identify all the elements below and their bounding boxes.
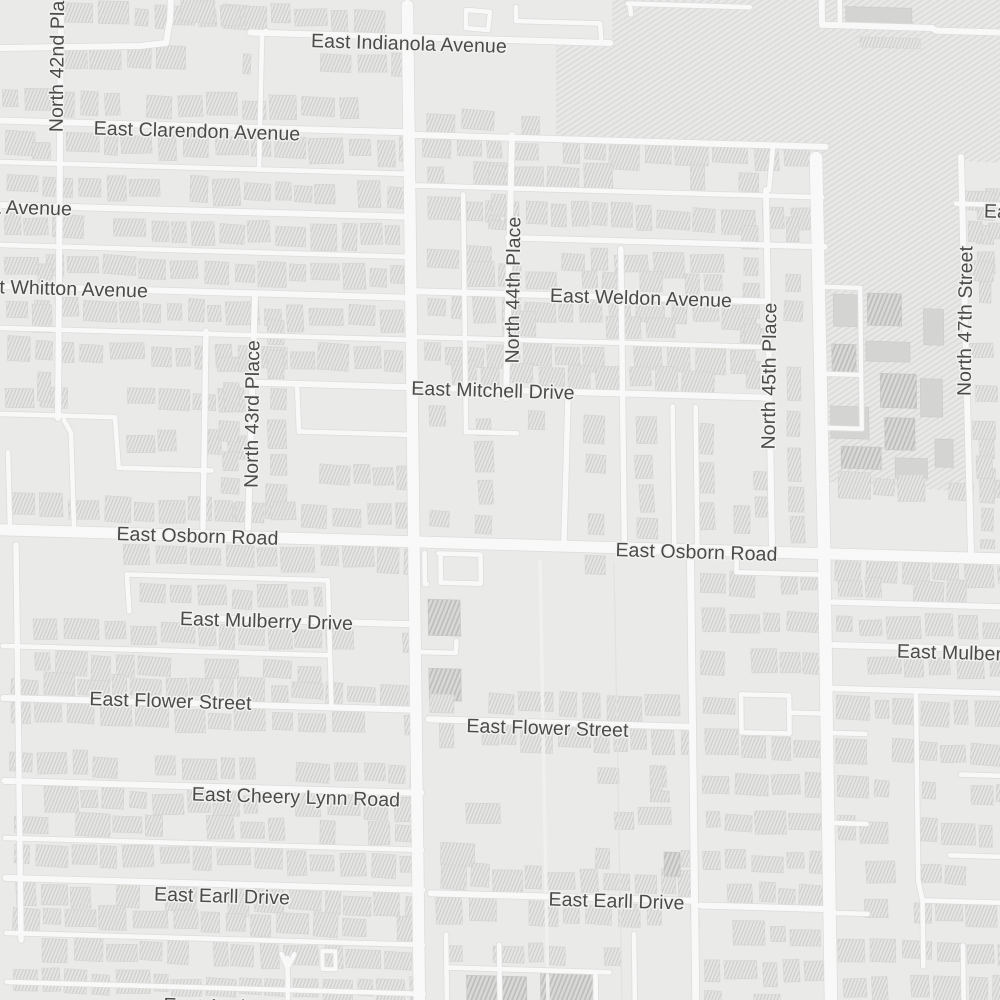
svg-text:East Flower Street: East Flower Street [89,688,252,715]
svg-text:North 44th Place: North 44th Place [502,216,526,363]
svg-text:East Osborn Road: East Osborn Road [615,539,778,566]
svg-text:North 43rd Place: North 43rd Place [241,340,265,488]
svg-text:North 45th Place: North 45th Place [758,302,782,449]
svg-text:East Earll Drive: East Earll Drive [154,884,291,910]
svg-text:East Earll Drive: East Earll Drive [548,889,685,915]
svg-text:East Flower Street: East Flower Street [466,715,629,742]
svg-text:North 47th Street: North 47th Street [954,245,978,396]
svg-text:North 42nd Place: North 42nd Place [46,0,70,132]
svg-text:East Osborn Road: East Osborn Road [116,523,279,550]
svg-text:East Whitton Avenue: East Whitton Avenue [0,275,148,302]
